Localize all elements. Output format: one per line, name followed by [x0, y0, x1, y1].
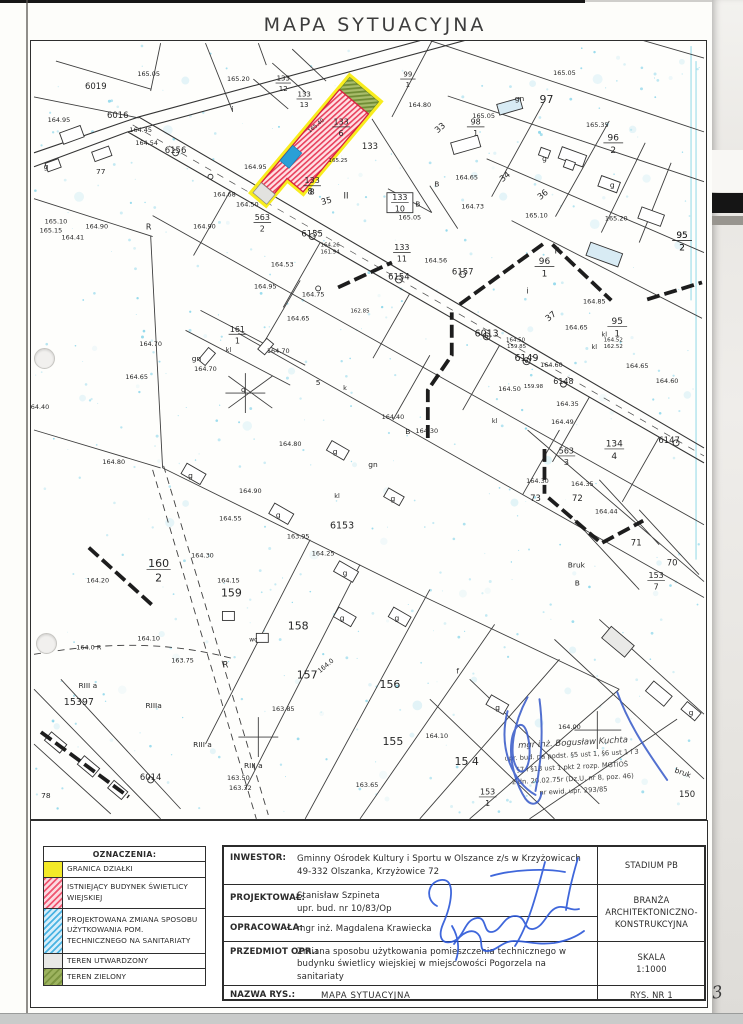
map-label: gn	[368, 460, 378, 469]
svg-text:153: 153	[649, 571, 664, 580]
svg-text:133: 133	[392, 193, 407, 202]
map-label: 164.20	[86, 577, 109, 585]
map-label: 164.95	[48, 116, 71, 124]
map-label: RIII a	[78, 681, 97, 690]
map-label: gn	[515, 94, 525, 103]
map-label: g	[391, 494, 396, 503]
map-label: 164.55	[219, 515, 242, 523]
map-label: g	[333, 447, 338, 456]
map-label: 164.95	[244, 163, 267, 171]
map-label: R	[222, 659, 228, 669]
map-label: 159.85	[507, 344, 526, 350]
map-label: RIII a	[193, 740, 212, 749]
map-label: 164.73	[461, 203, 484, 211]
map-label: 165.35	[586, 121, 609, 129]
map-label: g	[343, 569, 348, 578]
svg-text:133: 133	[305, 176, 320, 185]
map-label: 164.80	[409, 101, 432, 109]
map-label: 164.26	[321, 243, 341, 249]
inwestor-line2: 49-332 Olszanka, Krzyżowice 72	[297, 866, 592, 879]
map-label: 161.94	[321, 250, 341, 256]
map-label: 164.80	[102, 458, 125, 466]
map-label: 6156	[165, 145, 187, 155]
map-label: 6016	[107, 110, 129, 120]
map-label: 5	[316, 378, 321, 387]
map-label: 164.50	[236, 201, 259, 209]
map-label: 165.05	[399, 214, 422, 222]
svg-text:6: 6	[339, 129, 344, 138]
map-label: II	[344, 191, 349, 201]
svg-text:2: 2	[260, 225, 265, 234]
svg-text:95: 95	[612, 317, 623, 327]
nazwa-value: MAPA SYTUACYJNA	[321, 990, 410, 1003]
skala-label: SKALA	[597, 952, 706, 964]
map-label: 165.20	[605, 215, 628, 223]
map-label: g	[188, 471, 193, 480]
map-label: 164.30	[191, 552, 214, 560]
map-label: B	[415, 200, 420, 209]
row-line-4	[224, 985, 704, 986]
map-label: k	[343, 384, 347, 392]
legend-item-label: PROJEKTOWANA ZMIANA SPOSOBU UŻYTKOWANIA …	[63, 909, 205, 953]
svg-text:2: 2	[155, 572, 162, 585]
map-label: 70	[667, 558, 678, 568]
legend-item-label: TEREN ZIELONY	[63, 969, 130, 985]
map-label: 163.32	[229, 784, 252, 792]
map-label: f	[456, 666, 459, 675]
skala-value: 1:1000	[597, 964, 706, 976]
map-label: 162.52	[604, 344, 623, 350]
svg-text:2: 2	[610, 146, 616, 156]
svg-text:160: 160	[148, 557, 169, 570]
svg-text:1: 1	[614, 329, 620, 339]
projektowal-upr: upr. bud. nr 10/83/Op	[297, 903, 392, 916]
map-label: 165.15	[40, 227, 63, 235]
map-label: 164.44	[595, 508, 618, 516]
svg-text:1: 1	[235, 336, 240, 345]
svg-text:13: 13	[300, 101, 309, 109]
map-label: 164.65	[565, 323, 588, 331]
map-label: 164.30	[526, 477, 549, 485]
map-label: 6155	[301, 229, 323, 239]
inwestor-line1: Gminny Ośrodek Kultury i Sportu w Olszan…	[297, 853, 592, 866]
map-label: 159	[221, 587, 242, 600]
map-label: 165.05	[553, 69, 576, 77]
svg-text:10: 10	[395, 205, 405, 214]
svg-text:563: 563	[255, 213, 270, 222]
map-label: 164.53	[271, 260, 294, 268]
svg-text:563: 563	[559, 446, 574, 455]
map-label: 164.45	[129, 126, 152, 134]
map-label: 164.95	[254, 282, 277, 290]
map-label: 165.20	[227, 75, 250, 83]
map-label: 164.41	[62, 234, 85, 242]
map-label: 15397	[64, 697, 94, 708]
map-label: 155	[382, 735, 403, 748]
row-line-3	[224, 941, 704, 942]
svg-text:133: 133	[333, 117, 348, 126]
svg-text:4: 4	[611, 452, 617, 462]
svg-text:134: 134	[606, 439, 623, 449]
map-label: 164.30	[416, 427, 439, 435]
inwestor-label: INWESTOR:	[230, 853, 286, 863]
map-label: g	[340, 613, 345, 622]
map-label: 164.15	[217, 577, 240, 585]
svg-text:2: 2	[679, 244, 685, 254]
svg-text:12: 12	[279, 85, 288, 93]
svg-text:8: 8	[310, 188, 315, 197]
scan-edge-left	[26, 0, 28, 1024]
red-swatch	[44, 878, 63, 908]
map-label: 164.35	[571, 480, 594, 488]
map-label: g	[542, 154, 547, 163]
svg-text:161: 161	[230, 325, 245, 334]
map-label: 164.10	[137, 634, 160, 642]
hole-punch-bottom	[36, 633, 57, 654]
blue-swatch	[44, 909, 63, 953]
map-label: 164.50	[506, 337, 526, 343]
map-label: 164.35	[556, 400, 579, 408]
legend-header: OZNACZENIA:	[44, 847, 205, 862]
map-label: RIIIa	[145, 701, 161, 710]
map-label: 165.10	[45, 218, 68, 226]
map-label: i	[231, 105, 233, 114]
svg-text:1: 1	[485, 799, 490, 808]
map-label: 164.65	[626, 362, 649, 370]
map-label: 164.90	[193, 223, 216, 231]
map-label: 150	[679, 789, 695, 799]
map-label: 158	[288, 619, 309, 632]
stadium-value: STADIUM PB	[597, 860, 706, 872]
map-label: kl	[226, 346, 232, 354]
svg-text:133: 133	[394, 243, 409, 252]
map-label: 164.75	[302, 290, 325, 298]
map-label: 73	[530, 493, 541, 503]
map-label: 164.70	[139, 340, 162, 348]
map-label: Bruk	[568, 561, 586, 570]
map-label: 157	[297, 668, 318, 681]
svg-text:98: 98	[471, 117, 481, 126]
yellow-swatch	[44, 862, 63, 877]
map-label: 15 4	[455, 755, 479, 768]
legend-item-4: TEREN ZIELONY	[44, 969, 205, 985]
parcel-number-fraction: 13310	[387, 193, 413, 214]
scanned-page: MAPA SYTUACYJNA	[0, 0, 743, 1024]
map-label: 164.40	[382, 413, 405, 421]
map-label: 6148	[553, 377, 573, 386]
legend-item-2: PROJEKTOWANA ZMIANA SPOSOBU UŻYTKOWANIA …	[44, 909, 205, 954]
map-label: gn	[192, 354, 202, 363]
legend-item-3: TEREN UTWARDZONY	[44, 954, 205, 970]
map-label: 78	[41, 791, 51, 800]
map-label: 164.56	[424, 256, 447, 264]
scan-gray-mark	[712, 216, 743, 225]
svg-text:7: 7	[654, 583, 659, 592]
page-title: MAPA SYTUACYJNA	[195, 14, 555, 36]
map-label: 163.95	[287, 533, 310, 541]
map-label: 163.65	[356, 781, 379, 789]
map-label: 164.90	[85, 223, 108, 231]
legend-box: OZNACZENIA: GRANICA DZIAŁKIISTNIEJĄCY BU…	[43, 846, 206, 986]
legend-item-label: TEREN UTWARDZONY	[63, 954, 152, 969]
svg-text:99: 99	[403, 71, 412, 79]
map-label: g	[44, 162, 49, 171]
map-label: 6153	[330, 521, 354, 532]
legend-item-0: GRANICA DZIAŁKI	[44, 862, 205, 878]
map-label: 164.65	[455, 174, 478, 182]
legend-item-label: GRANICA DZIAŁKI	[63, 862, 137, 877]
map-label: 163.50	[227, 774, 250, 782]
title-block: INWESTOR: Gminny Ośrodek Kultury i Sport…	[222, 845, 706, 1001]
map-label: 159.98	[524, 384, 544, 390]
map-label: RIII a	[244, 761, 263, 770]
row-line-1	[224, 884, 704, 885]
map-label: 164.70	[267, 347, 290, 355]
map-label: 133	[362, 141, 378, 151]
map-label: B	[575, 579, 580, 588]
map-label: R	[554, 246, 560, 256]
map-label: 6013	[475, 328, 499, 339]
opracowala-name: mgr inż. Magdalena Krawiecka	[297, 923, 432, 936]
map-label: 6147	[658, 435, 680, 445]
svg-text:133: 133	[277, 75, 290, 83]
map-label: 164.70	[194, 365, 217, 373]
row-line-2	[224, 916, 597, 917]
map-label: g	[395, 613, 400, 622]
map-label: 164.50	[498, 385, 521, 393]
map-label: R	[146, 223, 152, 232]
scan-black-mark	[712, 193, 743, 213]
map-label: 72	[572, 493, 583, 503]
map-label: B	[434, 180, 439, 189]
map-label: wc	[249, 636, 257, 643]
rys-nr-value: RYS. NR 1	[597, 990, 706, 1002]
map-label: kl	[492, 417, 498, 425]
svg-text:153: 153	[480, 787, 495, 796]
scan-edge-top	[0, 0, 585, 3]
map-label: 71	[631, 538, 642, 548]
map-label: g	[241, 385, 246, 394]
situational-map: 165.05165.2060196016164.95164.45164.5461…	[31, 41, 706, 819]
map-label: 164.65	[287, 314, 310, 322]
map-label: 164.40	[31, 403, 49, 411]
map-label: 163.85	[272, 705, 295, 713]
map-label: 162.85	[350, 308, 369, 314]
map-frame: 165.05165.2060196016164.95164.45164.5461…	[30, 40, 707, 820]
map-label: 164.00	[558, 723, 581, 731]
map-label: 164.68	[213, 191, 236, 199]
map-label: 164.90	[239, 487, 262, 495]
branza-value: BRANŻA ARCHITEKTONICZNO- KONSTRUKCYJNA	[597, 895, 706, 930]
projektowal-name: Stanisław Szpineta	[297, 890, 380, 903]
map-label: g	[495, 703, 500, 712]
map-label: 6149	[514, 353, 538, 364]
svg-text:1: 1	[473, 129, 478, 138]
map-label: 164.60	[656, 377, 679, 385]
map-label: i	[526, 286, 528, 295]
map-label: 77	[96, 167, 106, 176]
scan-white-strip	[712, 150, 743, 192]
map-label: 164.10	[425, 732, 448, 740]
svg-text:96: 96	[608, 133, 620, 143]
map-label: 164.85	[583, 297, 606, 305]
map-label: kl	[334, 492, 340, 500]
legend-item-1: ISTNIEJĄCY BUDYNEK ŚWIETLICY WIEJSKIEJ	[44, 878, 205, 909]
green-swatch	[44, 969, 63, 985]
map-label: g	[276, 511, 281, 520]
map-label: 164.80	[279, 440, 302, 448]
svg-text:133: 133	[298, 90, 311, 98]
map-label: B	[405, 427, 410, 436]
nazwa-label: NAZWA RYS.:	[230, 990, 295, 1000]
projektowal-label: PROJEKTOWAŁ:	[230, 893, 305, 903]
przedmiot-value: Zmiana sposobu użytkowania pomieszczenia…	[297, 946, 595, 983]
map-label: 165.25	[329, 158, 348, 164]
map-label: 164.54	[135, 139, 158, 147]
svg-text:1: 1	[542, 269, 548, 279]
map-label: 6019	[85, 81, 107, 91]
map-label: 165.10	[525, 212, 548, 220]
map-label: 164.65	[125, 373, 148, 381]
legend-item-label: ISTNIEJĄCY BUDYNEK ŚWIETLICY WIEJSKIEJ	[63, 878, 205, 908]
map-label: 97	[540, 93, 554, 106]
map-label: 164.60	[540, 361, 563, 369]
svg-text:1: 1	[406, 81, 410, 89]
svg-text:11: 11	[397, 254, 407, 263]
map-label: kl	[592, 343, 598, 351]
svg-text:95: 95	[676, 231, 687, 241]
legend-rows: GRANICA DZIAŁKIISTNIEJĄCY BUDYNEK ŚWIETL…	[44, 862, 205, 985]
map-label: 164.0 R	[76, 643, 102, 651]
gray-swatch	[44, 954, 63, 969]
map-label: g	[610, 181, 615, 190]
map-label: 164.49	[551, 418, 574, 426]
map-label: 165.05	[137, 70, 160, 78]
map-label: 163.75	[171, 656, 194, 664]
map-label: g	[689, 708, 694, 717]
map-label: 156	[379, 678, 400, 691]
svg-text:3: 3	[564, 458, 569, 467]
hole-punch-top	[34, 348, 55, 369]
opracowala-label: OPRACOWAŁA:	[230, 923, 303, 933]
map-label: 6014	[140, 772, 162, 782]
scan-band-bottom	[0, 1013, 743, 1024]
map-label: 164.25	[312, 550, 335, 558]
svg-text:96: 96	[539, 257, 551, 267]
map-label: 6154	[388, 271, 410, 281]
map-label: 6157	[452, 266, 474, 276]
